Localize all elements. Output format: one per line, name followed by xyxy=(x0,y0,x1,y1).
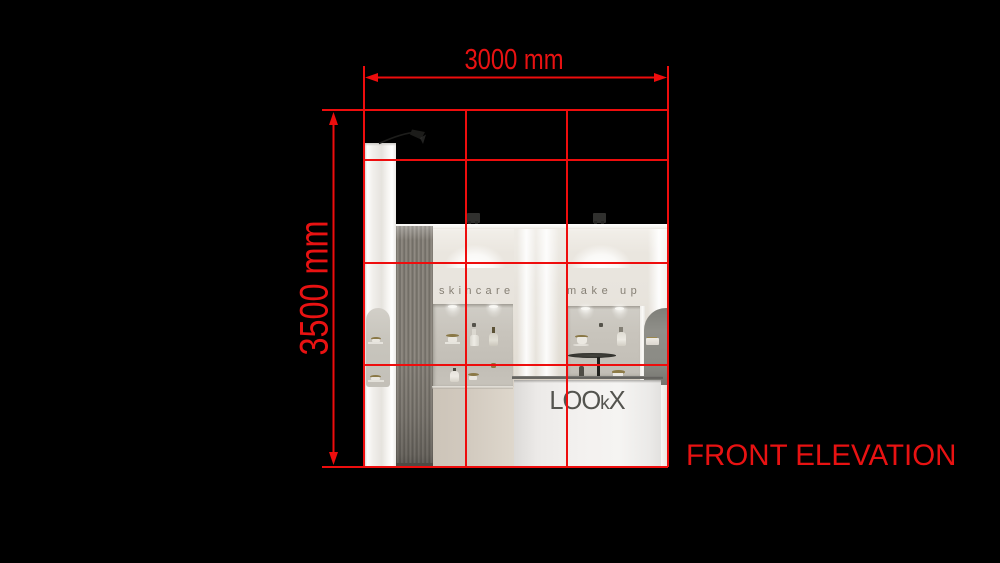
svg-text:FRONT ELEVATION: FRONT ELEVATION xyxy=(686,439,956,472)
svg-text:3500 mm: 3500 mm xyxy=(291,221,336,356)
svg-text:3000 mm: 3000 mm xyxy=(464,43,563,76)
